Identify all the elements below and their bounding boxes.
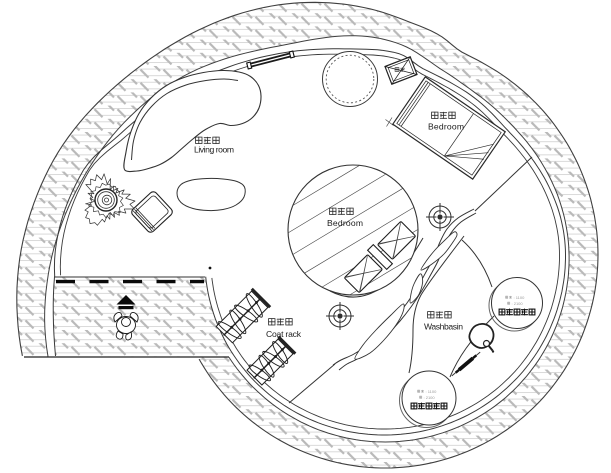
svg-text:Bedroom: Bedroom — [327, 218, 363, 228]
svg-text:Bedroom: Bedroom — [428, 122, 464, 132]
svg-text:Coat rack: Coat rack — [266, 329, 302, 339]
svg-text:: 2100: : 2100 — [512, 301, 524, 306]
svg-text:Washbasin: Washbasin — [424, 322, 463, 332]
svg-text:: 1100: : 1100 — [514, 295, 526, 300]
svg-text:: 2100: : 2100 — [424, 395, 436, 400]
svg-text:Living room: Living room — [194, 145, 234, 155]
svg-text:: 1100: : 1100 — [426, 389, 438, 394]
